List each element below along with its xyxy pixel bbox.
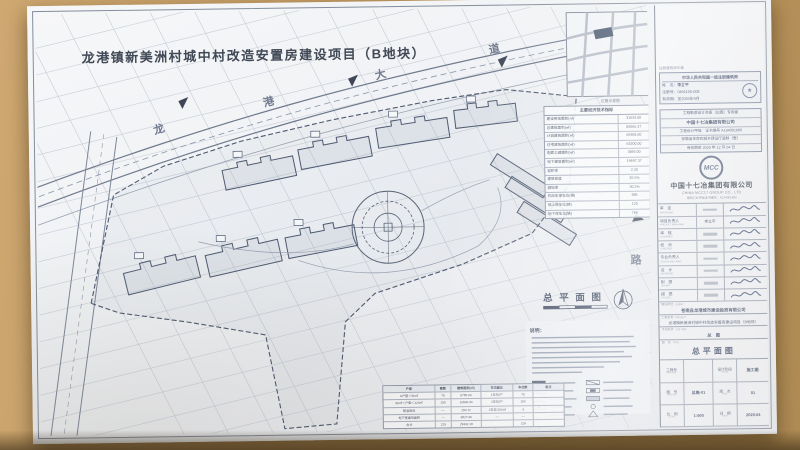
key-plan: 位置示意图 xyxy=(566,11,653,103)
handwritten-signature xyxy=(725,289,767,301)
road-char: 港 xyxy=(261,93,276,110)
handwritten-signature xyxy=(724,240,766,252)
title-grid: 工程号PROJ.NO. 设计阶段STAGE 施工图 图 号DWG.NO. 总施-… xyxy=(660,359,769,427)
signature-printed-name xyxy=(697,241,724,253)
road-char-right: 路 xyxy=(630,253,642,267)
unit-table-row: 合计 225 29332.18 228 xyxy=(384,420,564,429)
econ-row-value: 2.20 xyxy=(618,166,649,174)
stage-value-cell: 施工图 xyxy=(737,359,768,382)
unit-table-body: A户型＜90㎡ 75 6750.00 1车位/户 75 90㎡＜户型＜120㎡ … xyxy=(383,391,563,429)
econ-row-value: 886 xyxy=(619,192,650,200)
road-char: 龙 xyxy=(150,121,166,138)
signature-role: 项目负责人 PROJECT MANAGER xyxy=(658,216,697,228)
econ-table-row: 地下停车位(辆) 766 xyxy=(546,209,650,218)
unit-table-header-cell: 车位配比 xyxy=(481,384,513,391)
drawing-title: 总平面图 xyxy=(662,344,766,358)
rev-label-cell: 版 次REV. xyxy=(713,382,737,405)
signature-printed-name xyxy=(698,290,725,302)
handwritten-signature xyxy=(725,265,767,277)
drawing-title-cell: 图 名TITLE 总平面图 xyxy=(660,339,768,361)
mcc-logo-icon: MCC xyxy=(699,156,723,180)
economic-indicators-table: 主要经济技术指标 建设用地面积(㎡) 31534.00 总建筑面积(㎡) 890… xyxy=(543,105,651,220)
dwg-no-value-cell: 总施-01 xyxy=(684,382,713,405)
econ-row-value: 69368.00 xyxy=(618,132,649,140)
econ-row-label: 机动车停车位(辆) xyxy=(546,192,619,201)
signature-printed-name: 李立平 xyxy=(697,216,724,228)
company-cert-line: 建筑行业甲级证书编号：A134001606 xyxy=(658,194,766,202)
stage-label-cell: 设计阶段STAGE xyxy=(713,360,737,383)
econ-row-value: 30.2% xyxy=(619,183,650,191)
scale-value-cell: 1:500 xyxy=(685,404,714,427)
econ-table-rows: 建设用地面积(㎡) 31534.00 总建筑面积(㎡) 89065.37 计容建… xyxy=(545,115,650,219)
handwritten-signature xyxy=(724,203,766,215)
qualification-stamp: 工程勘察设计资质（出图）专用章 中国十七冶集团有限公司 工程设计甲级 证书编号 … xyxy=(659,108,762,153)
architect-registration-stamp: 中华人民共和国一级注册建筑师 姓 名：李立平 注册号：0401100-008 有… xyxy=(659,71,761,105)
handwritten-signature xyxy=(724,216,766,228)
road-char: 大 xyxy=(373,66,387,82)
notes-title: 说明： xyxy=(530,327,545,334)
unit-table-header-cell: 备注 xyxy=(533,384,563,391)
plan-title: 总 平 面 图 xyxy=(543,291,603,304)
econ-row-value: 3865.00 xyxy=(618,149,649,157)
site-plan-drawing: 龙 港 大 道 路 位置示意图 xyxy=(35,6,653,437)
econ-row-label: 建设用地面积(㎡) xyxy=(545,115,618,124)
econ-row-label: 建筑密度 xyxy=(545,175,618,184)
dwg-no-label-cell: 图 号DWG.NO. xyxy=(660,383,684,406)
signature-printed-name xyxy=(697,228,724,240)
handwritten-signature xyxy=(725,277,767,289)
signature-role: 设 计 DESIGNED xyxy=(659,265,698,277)
econ-row-label: 总建筑面积(㎡) xyxy=(545,124,618,133)
signature-role: 专业负责人 DISCIPLINE CHIEF xyxy=(658,253,697,265)
table-shadow xyxy=(0,430,800,450)
handwritten-signature xyxy=(724,252,766,264)
scale-bar xyxy=(543,305,607,309)
econ-row-value: 19697.37 xyxy=(618,158,649,166)
unit-mix-table: 户型套数建筑面积(㎡)车位配比车位数备注 A户型＜90㎡ 75 6750.00 … xyxy=(382,383,565,430)
econ-row-label: 地上停车位(辆) xyxy=(546,201,619,210)
econ-row-value: 63200.00 xyxy=(618,140,649,148)
unit-table-header-cell: 建筑面积(㎡) xyxy=(451,385,481,392)
proj-no-value-cell xyxy=(684,360,713,383)
proj-no-label-cell: 工程号PROJ.NO. xyxy=(660,360,684,383)
econ-row-label: 地下停车位(辆) xyxy=(546,210,619,219)
drawing-sheet: 龙 港 大 道 路 位置示意图 xyxy=(27,0,777,444)
title-block-spacer xyxy=(655,4,764,66)
econ-row-value: 120 xyxy=(619,200,650,208)
unit-table-header-cell: 车位数 xyxy=(513,384,533,390)
rev-value-cell: 01 xyxy=(737,381,768,404)
site-plan-area: 龙 港 大 道 路 位置示意图 xyxy=(35,6,653,437)
econ-row-label: 容积率 xyxy=(545,167,618,176)
signature-printed-name xyxy=(697,253,724,265)
signature-printed-name xyxy=(698,277,725,289)
title-block: 注册建筑师印章 中华人民共和国一级注册建筑师 姓 名：李立平 注册号：04011… xyxy=(654,4,769,427)
signature-table: 审 定 APPROVED 项目负责人 PROJECT MANAGER xyxy=(658,202,767,302)
unit-table-header-cell: 套数 xyxy=(435,385,451,391)
project-name: 龙港镇新美洲村城中村改造安置房建设项目（B地块） xyxy=(661,320,765,326)
signature-printed-name xyxy=(697,204,724,216)
signature-role: 描 图 TRACED xyxy=(659,290,698,302)
signature-role: 审 核 EXAMINED xyxy=(658,229,697,241)
econ-row-label: 绿地率 xyxy=(546,184,619,193)
unit-table-header-cell: 户型 xyxy=(383,386,435,393)
signature-role: 校 对 CHECKED xyxy=(658,241,697,253)
date-value-cell: 2020.04 xyxy=(738,404,769,427)
handwritten-signature xyxy=(724,228,766,240)
econ-row-label: 住宅建筑面积(㎡) xyxy=(545,141,618,150)
scale-label-cell: 比 例SCALE xyxy=(661,405,685,428)
keyplan-caption: 位置示意图 xyxy=(601,98,620,103)
date-label-cell: 日 期DATE xyxy=(714,404,738,427)
econ-row-label: 配套公建面积(㎡) xyxy=(545,149,618,158)
econ-row-label: 计容建筑面积(㎡) xyxy=(545,132,618,141)
econ-row-value: 89065.37 xyxy=(618,123,649,131)
econ-row-value: 31534.00 xyxy=(618,115,649,123)
signature-printed-name xyxy=(698,265,725,277)
econ-row-value: 26.5% xyxy=(618,175,649,183)
econ-row-value: 766 xyxy=(619,209,650,217)
road-char: 道 xyxy=(487,41,501,57)
signature-role: 制 图 DRAWN xyxy=(659,278,698,290)
photo-of-drawing: 龙 港 大 道 路 位置示意图 xyxy=(0,0,800,450)
econ-row-label: 地下建筑面积(㎡) xyxy=(545,158,618,167)
signature-role: 审 定 APPROVED xyxy=(658,204,697,216)
site-boundary xyxy=(88,89,581,432)
